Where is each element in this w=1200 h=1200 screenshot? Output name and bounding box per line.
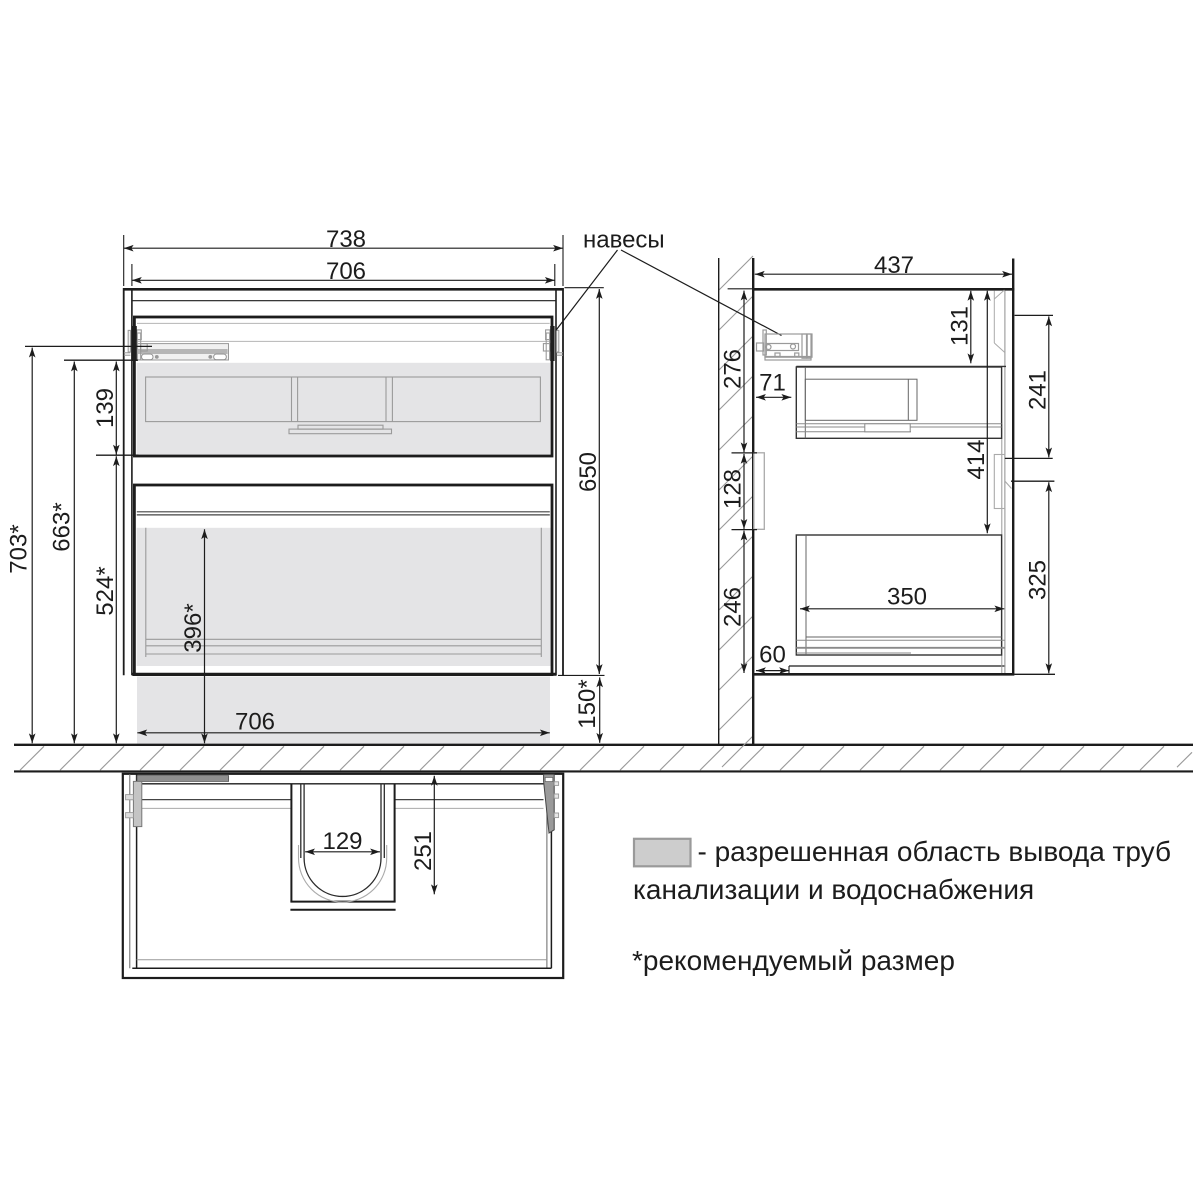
svg-text:703*: 703* bbox=[6, 524, 33, 573]
svg-text:*рекомендуемый размер: *рекомендуемый размер bbox=[632, 945, 955, 976]
svg-text:276: 276 bbox=[720, 349, 747, 389]
svg-text:131: 131 bbox=[947, 306, 974, 346]
svg-text:706: 706 bbox=[326, 258, 366, 285]
svg-text:71: 71 bbox=[759, 369, 786, 396]
svg-text:650: 650 bbox=[575, 452, 602, 492]
svg-text:150*: 150* bbox=[574, 679, 601, 728]
svg-text:524*: 524* bbox=[92, 566, 119, 615]
svg-text:канализации и водоснабжения: канализации и водоснабжения bbox=[633, 874, 1034, 905]
svg-text:246: 246 bbox=[720, 587, 747, 627]
svg-text:325: 325 bbox=[1025, 560, 1052, 600]
svg-text:128: 128 bbox=[720, 469, 747, 509]
svg-text:396*: 396* bbox=[180, 603, 207, 652]
svg-text:241: 241 bbox=[1025, 370, 1052, 410]
svg-text:706: 706 bbox=[235, 709, 275, 736]
svg-text:251: 251 bbox=[410, 831, 437, 871]
svg-text:139: 139 bbox=[92, 388, 119, 428]
svg-text:738: 738 bbox=[326, 226, 366, 253]
svg-text:60: 60 bbox=[759, 642, 786, 669]
svg-text:- разрешенная область вывода т: - разрешенная область вывода труб bbox=[698, 836, 1171, 867]
svg-text:129: 129 bbox=[322, 828, 362, 855]
svg-text:414: 414 bbox=[963, 439, 990, 479]
svg-text:350: 350 bbox=[887, 583, 927, 610]
svg-text:навесы: навесы bbox=[583, 227, 665, 254]
svg-text:437: 437 bbox=[874, 252, 914, 279]
svg-text:663*: 663* bbox=[49, 502, 76, 551]
